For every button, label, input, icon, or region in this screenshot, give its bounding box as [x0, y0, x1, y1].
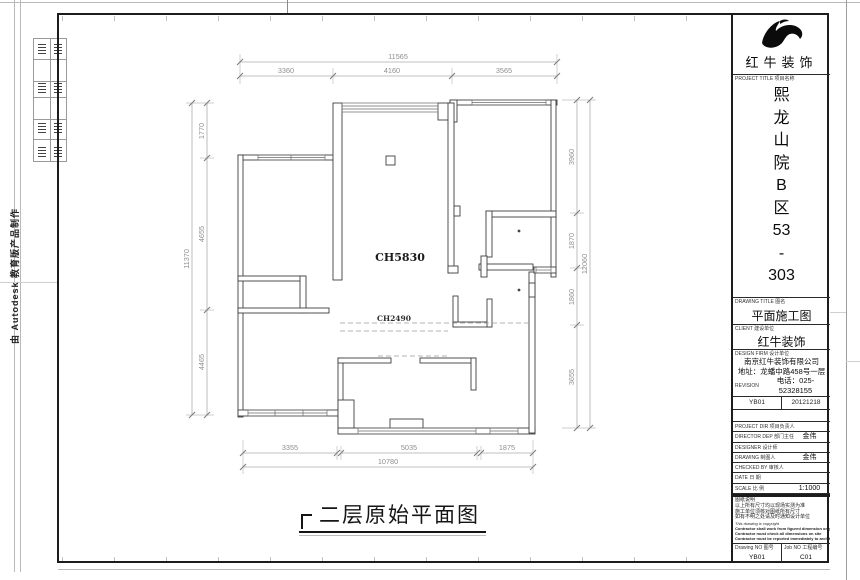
caption-underline-shadow: [299, 535, 486, 536]
caption-text: 二层原始平面图: [319, 499, 480, 529]
number-section: Drawing NO 图号 YB01 Job NO 工程编号 C01: [733, 544, 830, 563]
svg-text:1860: 1860: [567, 289, 576, 305]
row-project-dir: PROJECT DIR 项目负责人: [733, 422, 830, 432]
svg-text:3960: 3960: [567, 149, 576, 165]
dashed-lines: [340, 323, 529, 356]
svg-text:1875: 1875: [499, 443, 515, 452]
caption-corner-mark: [301, 514, 312, 529]
title-block: 红牛装饰 PROJECT TITLE 项目名称 熙 龙 山 院 B 区 53 -…: [731, 13, 830, 563]
cad-sheet: 由 Autodesk 教育版产品制作 由 Autodesk 教育版产品制作: [0, 0, 860, 580]
svg-text:5035: 5035: [401, 443, 417, 452]
client-label: CLIENT 建设单位: [733, 325, 830, 332]
svg-text:4465: 4465: [197, 354, 206, 370]
column-dot: [518, 230, 521, 233]
wall-outline: [238, 100, 557, 434]
svg-text:3565: 3565: [496, 66, 512, 75]
row-date: DATE 日 期: [733, 473, 830, 483]
row-designer: DESIGNER 设计师: [733, 443, 830, 453]
drawing-no-cell: Drawing NO 图号 YB01: [733, 544, 782, 563]
svg-text:4655: 4655: [197, 226, 206, 242]
svg-text:3355: 3355: [282, 443, 298, 452]
drawing-title: 平面施工图: [733, 307, 830, 324]
job-no-label: Job NO 工程编号: [782, 544, 830, 551]
dim-bottom: 3355 5035 1875 10780: [240, 440, 536, 474]
company-name: 南京红牛装饰有限公司: [733, 357, 830, 367]
drawing-date: 20121218: [782, 397, 830, 409]
plan-caption: 二层原始平面图: [299, 499, 486, 536]
client-name: 红牛装饰: [733, 333, 830, 350]
drawing-no-label: Drawing NO 图号: [733, 544, 781, 551]
row-scale: SCALE 比 例1:1000: [733, 484, 830, 494]
svg-text:11370: 11370: [182, 249, 191, 269]
svg-text:10780: 10780: [378, 457, 398, 466]
svg-text:1870: 1870: [567, 233, 576, 249]
company-section: DESIGN FIRM 设计单位 南京红牛装饰有限公司 地址：龙蟠中路458号一…: [733, 350, 830, 397]
notes-section: 图纸说明 以上所有尺寸均以现场实测为准 施工单位须核对图纸所有尺寸 如有不明之处…: [733, 497, 830, 544]
dim-top: 11565 3360 4160 3565: [237, 52, 560, 84]
company-phone: 电话：025-52328155: [761, 376, 830, 395]
empty-row: [733, 410, 830, 422]
dim-left: 1770 4655 4465 11370: [182, 100, 214, 418]
svg-text:4160: 4160: [384, 66, 400, 75]
row-director: DIRECTOR DEP 部门主任金伟: [733, 432, 830, 442]
client-section: CLIENT 建设单位 红牛装饰: [733, 325, 830, 350]
company-label: DESIGN FIRM 设计单位: [733, 350, 830, 357]
job-no: C01: [782, 554, 830, 561]
drawing-code: YB01: [733, 397, 782, 409]
row-checked: CHECKED BY 审核人: [733, 463, 830, 473]
personnel-section: PROJECT DIR 项目负责人 DIRECTOR DEP 部门主任金伟 DE…: [733, 422, 830, 494]
project-label-row: PROJECT TITLE 项目名称: [733, 75, 830, 85]
bull-logo-icon: [754, 17, 810, 51]
drawing-title-section: DRAWING TITLE 图名 平面施工图: [733, 298, 830, 325]
drawing-no: YB01: [733, 554, 781, 561]
dim-right: 3960 1870 1860 3655 12060: [562, 97, 596, 431]
project-title-label: PROJECT TITLE 项目名称: [733, 75, 830, 82]
svg-text:1770: 1770: [197, 123, 206, 139]
svg-text:12060: 12060: [580, 254, 589, 274]
ceiling-height-label: CH5830: [375, 251, 425, 264]
brand-name: 红牛装饰: [733, 52, 830, 71]
row-drawing: DRAWING 制图人金伟: [733, 453, 830, 463]
column-dot: [518, 289, 521, 292]
svg-text:3655: 3655: [567, 369, 576, 385]
drawing-title-label: DRAWING TITLE 图名: [733, 298, 830, 305]
code-date-row: YB01 20121218: [733, 397, 830, 410]
logo-section: 红牛装饰: [733, 13, 830, 75]
job-no-cell: Job NO 工程编号 C01: [782, 544, 830, 563]
svg-text:3360: 3360: [278, 66, 294, 75]
revision-label: REVISION: [733, 383, 761, 389]
svg-text:11565: 11565: [388, 52, 408, 61]
company-address: 地址：龙蟠中路458号一层: [733, 367, 830, 377]
opening-height-label: CH2490: [377, 314, 411, 323]
project-name-section: 熙 龙 山 院 B 区 53 - 303: [733, 85, 830, 298]
